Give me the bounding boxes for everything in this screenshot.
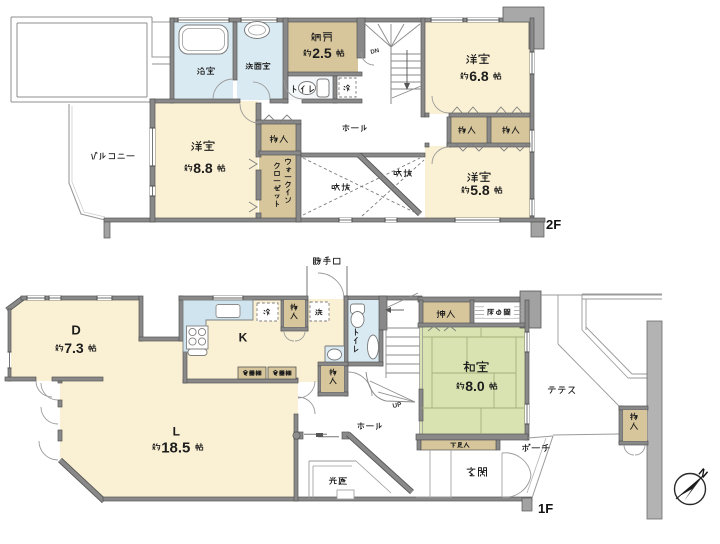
svg-text:1F: 1F bbox=[538, 501, 553, 516]
svg-text:L: L bbox=[173, 424, 180, 438]
svg-text:2.5: 2.5 bbox=[312, 45, 332, 61]
svg-text:18.5: 18.5 bbox=[161, 439, 190, 456]
svg-text:2F: 2F bbox=[546, 217, 561, 232]
svg-text:7.3: 7.3 bbox=[64, 340, 84, 356]
svg-text:8.0: 8.0 bbox=[465, 378, 485, 394]
svg-text:D: D bbox=[71, 323, 80, 338]
svg-text:K: K bbox=[239, 330, 248, 344]
svg-text:6.8: 6.8 bbox=[469, 68, 489, 84]
svg-text:5.8: 5.8 bbox=[470, 182, 490, 198]
svg-text:8.8: 8.8 bbox=[193, 160, 213, 176]
